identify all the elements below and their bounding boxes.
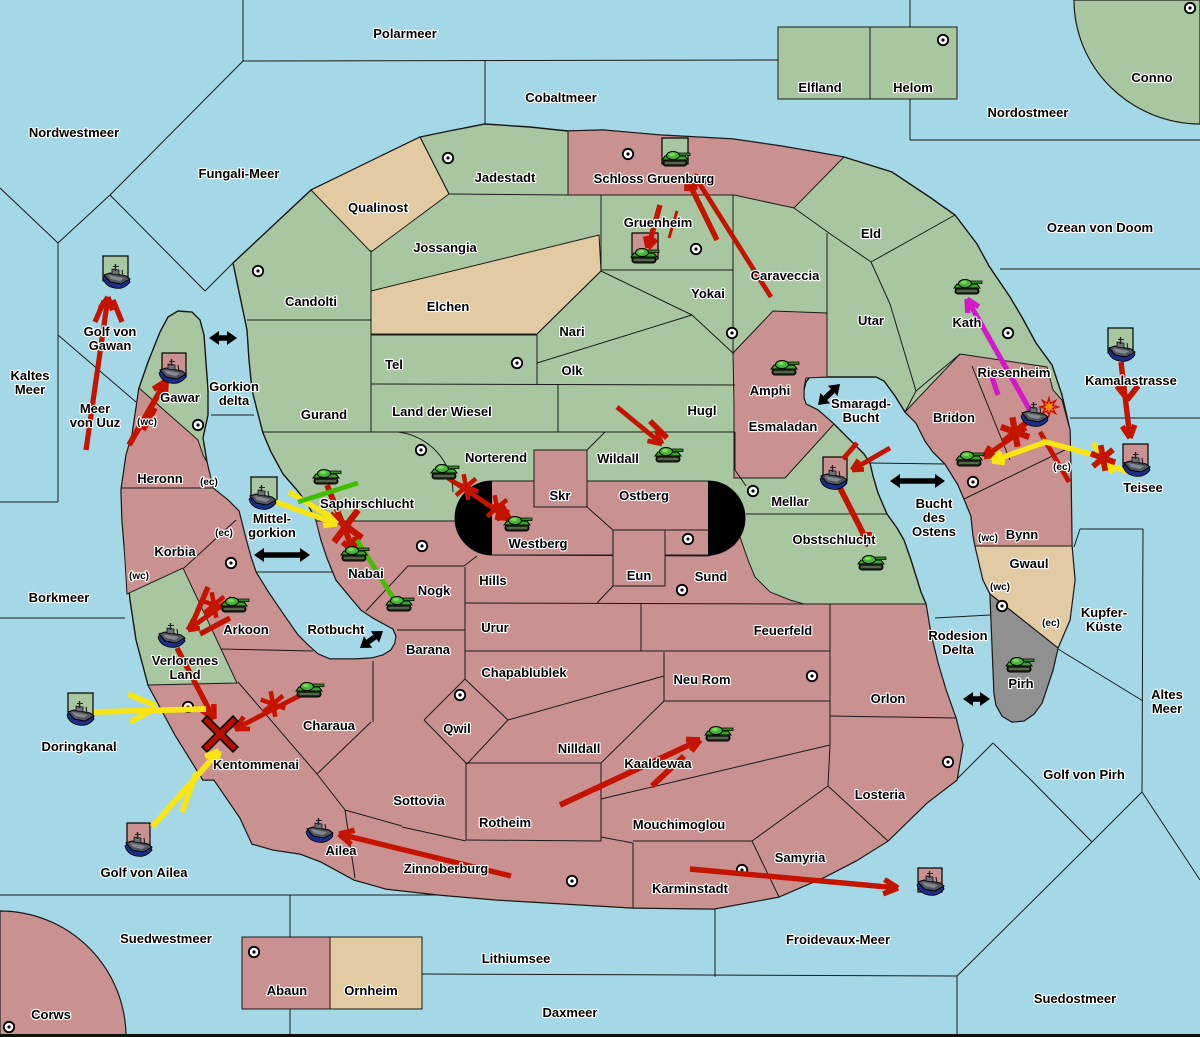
svg-text:Gurand: Gurand (301, 407, 347, 422)
svg-text:delta: delta (219, 393, 250, 408)
svg-text:Kamalastrasse: Kamalastrasse (1085, 373, 1177, 388)
svg-text:Nilldall: Nilldall (558, 741, 601, 756)
svg-text:Nordwestmeer: Nordwestmeer (29, 125, 119, 140)
svg-text:Urur: Urur (481, 620, 508, 635)
svg-text:Schloss Gruenburg: Schloss Gruenburg (594, 171, 715, 186)
svg-text:Fungali-Meer: Fungali-Meer (199, 166, 280, 181)
svg-text:Hugl: Hugl (688, 403, 717, 418)
svg-text:Nabai: Nabai (348, 566, 383, 581)
svg-text:Mittel-: Mittel- (253, 511, 291, 526)
svg-text:Gawar: Gawar (160, 390, 200, 405)
svg-text:Olk: Olk (562, 363, 584, 378)
svg-text:Eun: Eun (627, 568, 652, 583)
svg-text:Esmaladan: Esmaladan (749, 419, 818, 434)
svg-text:Losteria: Losteria (855, 787, 906, 802)
svg-text:von Uuz: von Uuz (70, 415, 121, 430)
svg-text:(wc): (wc) (978, 533, 998, 544)
svg-text:des: des (923, 510, 945, 525)
svg-text:Sottovia: Sottovia (393, 793, 445, 808)
svg-text:Smaragd-: Smaragd- (831, 396, 891, 411)
svg-text:Golf von Pirh: Golf von Pirh (1043, 767, 1125, 782)
svg-text:Riesenheim: Riesenheim (978, 365, 1051, 380)
svg-text:Land der Wiesel: Land der Wiesel (392, 404, 492, 419)
svg-text:Jossangia: Jossangia (413, 240, 477, 255)
svg-text:Yokai: Yokai (691, 286, 725, 301)
svg-text:Ailea: Ailea (325, 843, 357, 858)
svg-text:Bucht: Bucht (916, 496, 954, 511)
svg-text:Rotbucht: Rotbucht (307, 622, 365, 637)
svg-text:Bridon: Bridon (933, 410, 975, 425)
svg-text:Cobaltmeer: Cobaltmeer (525, 90, 597, 105)
svg-text:Kath: Kath (953, 315, 982, 330)
svg-text:Westberg: Westberg (509, 536, 568, 551)
svg-text:Suedwestmeer: Suedwestmeer (120, 931, 212, 946)
svg-text:Eld: Eld (861, 226, 881, 241)
svg-text:Barana: Barana (406, 642, 451, 657)
svg-text:Verlorenes: Verlorenes (152, 653, 219, 668)
svg-text:Nogk: Nogk (418, 583, 451, 598)
svg-text:Samyria: Samyria (775, 850, 826, 865)
svg-text:Tel: Tel (385, 357, 403, 372)
svg-text:Kupfer-: Kupfer- (1081, 605, 1127, 620)
svg-text:Wildall: Wildall (597, 451, 639, 466)
svg-text:(ec): (ec) (215, 528, 233, 539)
svg-text:Meer: Meer (80, 401, 110, 416)
svg-text:Kaltes: Kaltes (10, 368, 49, 383)
svg-text:Pirh: Pirh (1008, 676, 1033, 691)
svg-text:Golf von: Golf von (84, 324, 137, 339)
svg-text:(wc): (wc) (137, 417, 157, 428)
svg-text:Nari: Nari (559, 324, 584, 339)
svg-text:Gruenheim: Gruenheim (624, 215, 693, 230)
svg-text:Daxmeer: Daxmeer (543, 1005, 598, 1020)
svg-text:Karminstadt: Karminstadt (652, 881, 729, 896)
svg-text:Froidevaux-Meer: Froidevaux-Meer (786, 932, 890, 947)
svg-text:Elfland: Elfland (798, 80, 841, 95)
svg-text:Borkmeer: Borkmeer (29, 590, 90, 605)
svg-text:Abaun: Abaun (267, 983, 308, 998)
svg-text:Feuerfeld: Feuerfeld (754, 623, 813, 638)
svg-text:(ec): (ec) (1053, 462, 1071, 473)
svg-text:Rodesion: Rodesion (928, 628, 987, 643)
svg-text:Suedostmeer: Suedostmeer (1034, 991, 1116, 1006)
svg-text:Norterend: Norterend (465, 450, 527, 465)
svg-text:Chapablublek: Chapablublek (481, 665, 567, 680)
svg-text:Ozean von Doom: Ozean von Doom (1047, 220, 1153, 235)
svg-text:Candolti: Candolti (285, 294, 337, 309)
svg-text:Nordostmeer: Nordostmeer (988, 105, 1069, 120)
svg-text:Obstschlucht: Obstschlucht (792, 532, 876, 547)
svg-text:Altes: Altes (1151, 687, 1183, 702)
svg-text:Elchen: Elchen (427, 299, 470, 314)
svg-text:Ostens: Ostens (912, 524, 956, 539)
svg-text:Utar: Utar (858, 313, 884, 328)
svg-text:Helom: Helom (893, 80, 933, 95)
svg-text:(wc): (wc) (990, 582, 1010, 593)
svg-text:Land: Land (169, 667, 200, 682)
svg-text:Mellar: Mellar (771, 494, 809, 509)
svg-text:Neu Rom: Neu Rom (673, 672, 730, 687)
svg-text:Polarmeer: Polarmeer (373, 26, 437, 41)
svg-text:Amphi: Amphi (750, 383, 790, 398)
svg-text:Kaaldewaa: Kaaldewaa (624, 756, 692, 771)
svg-text:Caraveccia: Caraveccia (751, 268, 820, 283)
svg-text:Bucht: Bucht (843, 410, 881, 425)
svg-text:Sund: Sund (695, 569, 728, 584)
svg-text:Teisee: Teisee (1123, 480, 1163, 495)
svg-text:Qualinost: Qualinost (348, 200, 409, 215)
svg-text:Ornheim: Ornheim (344, 983, 397, 998)
svg-text:Corws: Corws (31, 1007, 71, 1022)
svg-text:(wc): (wc) (129, 571, 149, 582)
svg-text:Lithiumsee: Lithiumsee (482, 951, 551, 966)
svg-text:Arkoon: Arkoon (223, 622, 269, 637)
svg-text:Korbia: Korbia (154, 544, 196, 559)
svg-text:Charaua: Charaua (303, 718, 356, 733)
svg-text:Meer: Meer (1152, 701, 1182, 716)
svg-text:Küste: Küste (1086, 619, 1122, 634)
svg-text:Ostberg: Ostberg (619, 488, 669, 503)
svg-text:Zinnoberburg: Zinnoberburg (404, 861, 489, 876)
svg-text:Orlon: Orlon (871, 691, 906, 706)
svg-text:(ec): (ec) (200, 477, 218, 488)
svg-text:Heronn: Heronn (137, 471, 183, 486)
svg-text:Delta: Delta (942, 642, 975, 657)
svg-text:Gawan: Gawan (89, 338, 132, 353)
svg-text:(ec): (ec) (1042, 618, 1060, 629)
svg-text:Golf von Ailea: Golf von Ailea (101, 865, 189, 880)
svg-text:Gorkion: Gorkion (209, 379, 259, 394)
svg-text:Gwaul: Gwaul (1009, 556, 1048, 571)
svg-text:Bynn: Bynn (1006, 527, 1039, 542)
svg-text:Qwil: Qwil (443, 721, 470, 736)
svg-text:Mouchimoglou: Mouchimoglou (633, 817, 725, 832)
svg-text:Kentommenai: Kentommenai (213, 757, 299, 772)
svg-text:Conno: Conno (1131, 70, 1172, 85)
svg-text:Saphirschlucht: Saphirschlucht (320, 496, 415, 511)
svg-text:Hills: Hills (479, 573, 506, 588)
svg-text:Rotheim: Rotheim (479, 815, 531, 830)
svg-text:Jadestadt: Jadestadt (475, 170, 536, 185)
svg-text:gorkion: gorkion (248, 525, 296, 540)
svg-text:Meer: Meer (15, 382, 45, 397)
svg-text:Doringkanal: Doringkanal (41, 739, 116, 754)
svg-text:Skr: Skr (550, 488, 571, 503)
